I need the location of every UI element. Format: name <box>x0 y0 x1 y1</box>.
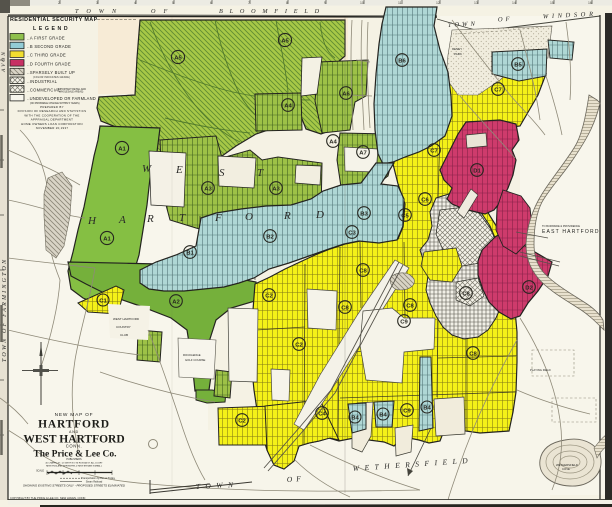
svg-text:14: 14 <box>512 1 516 5</box>
svg-text:A3: A3 <box>204 187 212 193</box>
svg-text:A4: A4 <box>284 104 292 110</box>
svg-text:B6: B6 <box>398 59 406 65</box>
svg-text:2: 2 <box>58 1 60 5</box>
svg-text:KENEY: KENEY <box>452 47 462 51</box>
svg-text:OF: OF <box>287 474 306 484</box>
svg-text:..COMMERCIAL: ..COMMERCIAL <box>27 88 61 93</box>
svg-text:S: S <box>219 167 225 179</box>
svg-text:12: 12 <box>436 1 440 5</box>
svg-text:WEST HARTFORD: WEST HARTFORD <box>113 317 140 321</box>
svg-text:C8: C8 <box>469 352 477 358</box>
svg-text:A2: A2 <box>172 300 180 306</box>
svg-text:C7: C7 <box>494 88 502 94</box>
svg-text:3: 3 <box>96 1 98 5</box>
svg-text:..UNDEVELOPED OR FARMLAND: ..UNDEVELOPED OR FARMLAND <box>27 96 96 101</box>
svg-text:SHOWING EXISTING STREETS ON: SHOWING EXISTING STREETS ONLY - PROPOSED… <box>23 484 125 488</box>
svg-text:A6: A6 <box>342 92 350 98</box>
svg-text:C8: C8 <box>359 269 367 275</box>
svg-text:T: T <box>179 212 186 224</box>
svg-text:PLAYING FIELD: PLAYING FIELD <box>530 368 551 372</box>
svg-text:A: A <box>118 214 126 226</box>
svg-text:A1: A1 <box>118 147 126 153</box>
svg-text:C5: C5 <box>401 214 409 220</box>
svg-text:BLOOMFIELD: BLOOMFIELD <box>219 8 326 15</box>
svg-text:SCALE: SCALE <box>36 470 44 473</box>
svg-text:TOWN: TOWN <box>75 8 124 15</box>
svg-text:NOVEMBER 20,1937: NOVEMBER 20,1937 <box>36 126 69 130</box>
svg-text:B4: B4 <box>351 416 359 422</box>
svg-text:AVON: AVON <box>1 50 7 73</box>
svg-text:..D FOURTH GRADE: ..D FOURTH GRADE <box>27 61 71 66</box>
svg-text:C8: C8 <box>462 292 470 298</box>
svg-text:PARK: PARK <box>454 52 462 56</box>
svg-text:9: 9 <box>324 1 326 5</box>
svg-text:4: 4 <box>134 1 136 5</box>
svg-text:EAST HARTFORD: EAST HARTFORD <box>542 229 600 235</box>
svg-text:C1: C1 <box>99 299 107 305</box>
svg-text:A1: A1 <box>103 237 111 243</box>
svg-text:C7: C7 <box>430 149 438 155</box>
svg-text:R: R <box>283 210 291 222</box>
svg-text:40 CHAPEL ST. 12 SMITH ST.: 40 CHAPEL ST. 12 SMITH ST. 96 RUSSIA ST.… <box>45 462 103 465</box>
svg-text:E: E <box>175 164 183 176</box>
svg-text:C2: C2 <box>295 343 303 349</box>
svg-text:..C THIRD GRADE: ..C THIRD GRADE <box>27 53 66 58</box>
svg-text:B1: B1 <box>186 251 194 257</box>
svg-text:WHOLESALE AREAS): WHOLESALE AREAS) <box>59 91 84 94</box>
svg-text:C3: C3 <box>348 231 356 237</box>
svg-text:B2: B2 <box>266 235 274 241</box>
svg-text:B3: B3 <box>360 212 368 218</box>
svg-text:LEGEND: LEGEND <box>33 26 70 32</box>
svg-text:R: R <box>146 213 154 225</box>
svg-text:GOLF COURSE: GOLF COURSE <box>185 358 205 362</box>
svg-text:PUBLISHERS: PUBLISHERS <box>66 458 82 461</box>
svg-text:A3: A3 <box>272 187 280 193</box>
svg-text:C9: C9 <box>403 409 411 415</box>
svg-text:C2: C2 <box>265 294 273 300</box>
svg-text:COVE: COVE <box>562 467 570 471</box>
svg-text:C9: C9 <box>400 320 408 326</box>
svg-text:T: T <box>257 167 264 179</box>
svg-text:B4: B4 <box>379 413 387 419</box>
svg-text:D1: D1 <box>473 169 481 175</box>
svg-text:O: O <box>245 211 253 223</box>
svg-text:..INDUSTRIAL: ..INDUSTRIAL <box>27 79 58 84</box>
svg-text:A4: A4 <box>329 140 337 146</box>
svg-text:..A FIRST GRADE: ..A FIRST GRADE <box>27 35 65 40</box>
svg-text:RESIDENTIAL SECURITY MAP: RESIDENTIAL SECURITY MAP <box>10 17 98 23</box>
svg-text:NEW ENGLAND SPRINGFIELD NE: NEW ENGLAND SPRINGFIELD NEW BRITAIN KIMB… <box>46 465 103 468</box>
svg-text:C4: C4 <box>318 412 326 418</box>
svg-text:OF: OF <box>498 16 513 24</box>
svg-text:..B SECOND GRADE: ..B SECOND GRADE <box>27 44 71 49</box>
svg-text:H: H <box>87 215 97 227</box>
svg-text:COUNTRY: COUNTRY <box>116 325 131 329</box>
svg-text:TOWN OF FARMINGTON: TOWN OF FARMINGTON <box>2 258 8 362</box>
svg-text:8: 8 <box>286 1 288 5</box>
svg-text:HARTFORD: HARTFORD <box>38 419 110 431</box>
svg-text:C6: C6 <box>421 198 429 204</box>
svg-text:10: 10 <box>360 1 364 5</box>
svg-text:NEW MAP OF: NEW MAP OF <box>55 412 94 418</box>
svg-text:C8: C8 <box>406 304 414 310</box>
svg-text:W: W <box>142 163 152 175</box>
svg-text:15: 15 <box>550 1 554 5</box>
svg-text:B5: B5 <box>514 63 522 69</box>
svg-text:OF: OF <box>151 8 175 15</box>
svg-text:A5: A5 <box>281 39 289 45</box>
svg-text:13: 13 <box>474 1 478 5</box>
svg-text:7: 7 <box>248 1 250 5</box>
svg-text:C2: C2 <box>238 419 246 425</box>
svg-text:A7: A7 <box>359 151 367 157</box>
svg-text:A5: A5 <box>174 56 182 62</box>
svg-text:6: 6 <box>210 1 212 5</box>
svg-text:..SPARSELY BUILT UP: ..SPARSELY BUILT UP <box>27 70 75 75</box>
svg-text:16: 16 <box>588 1 592 5</box>
svg-text:F: F <box>214 212 222 224</box>
svg-text:D: D <box>315 209 324 221</box>
svg-text:11: 11 <box>398 1 402 5</box>
svg-text:B4: B4 <box>423 406 431 412</box>
svg-text:ROCKLEDGE: ROCKLEDGE <box>183 353 201 357</box>
svg-text:5: 5 <box>172 1 174 5</box>
svg-text:CLUB: CLUB <box>120 333 128 337</box>
svg-text:D2: D2 <box>525 286 533 292</box>
svg-text:CONN.: CONN. <box>66 444 83 449</box>
svg-text:TO BURNSIDE & PROVIDENCE: TO BURNSIDE & PROVIDENCE <box>542 224 580 228</box>
